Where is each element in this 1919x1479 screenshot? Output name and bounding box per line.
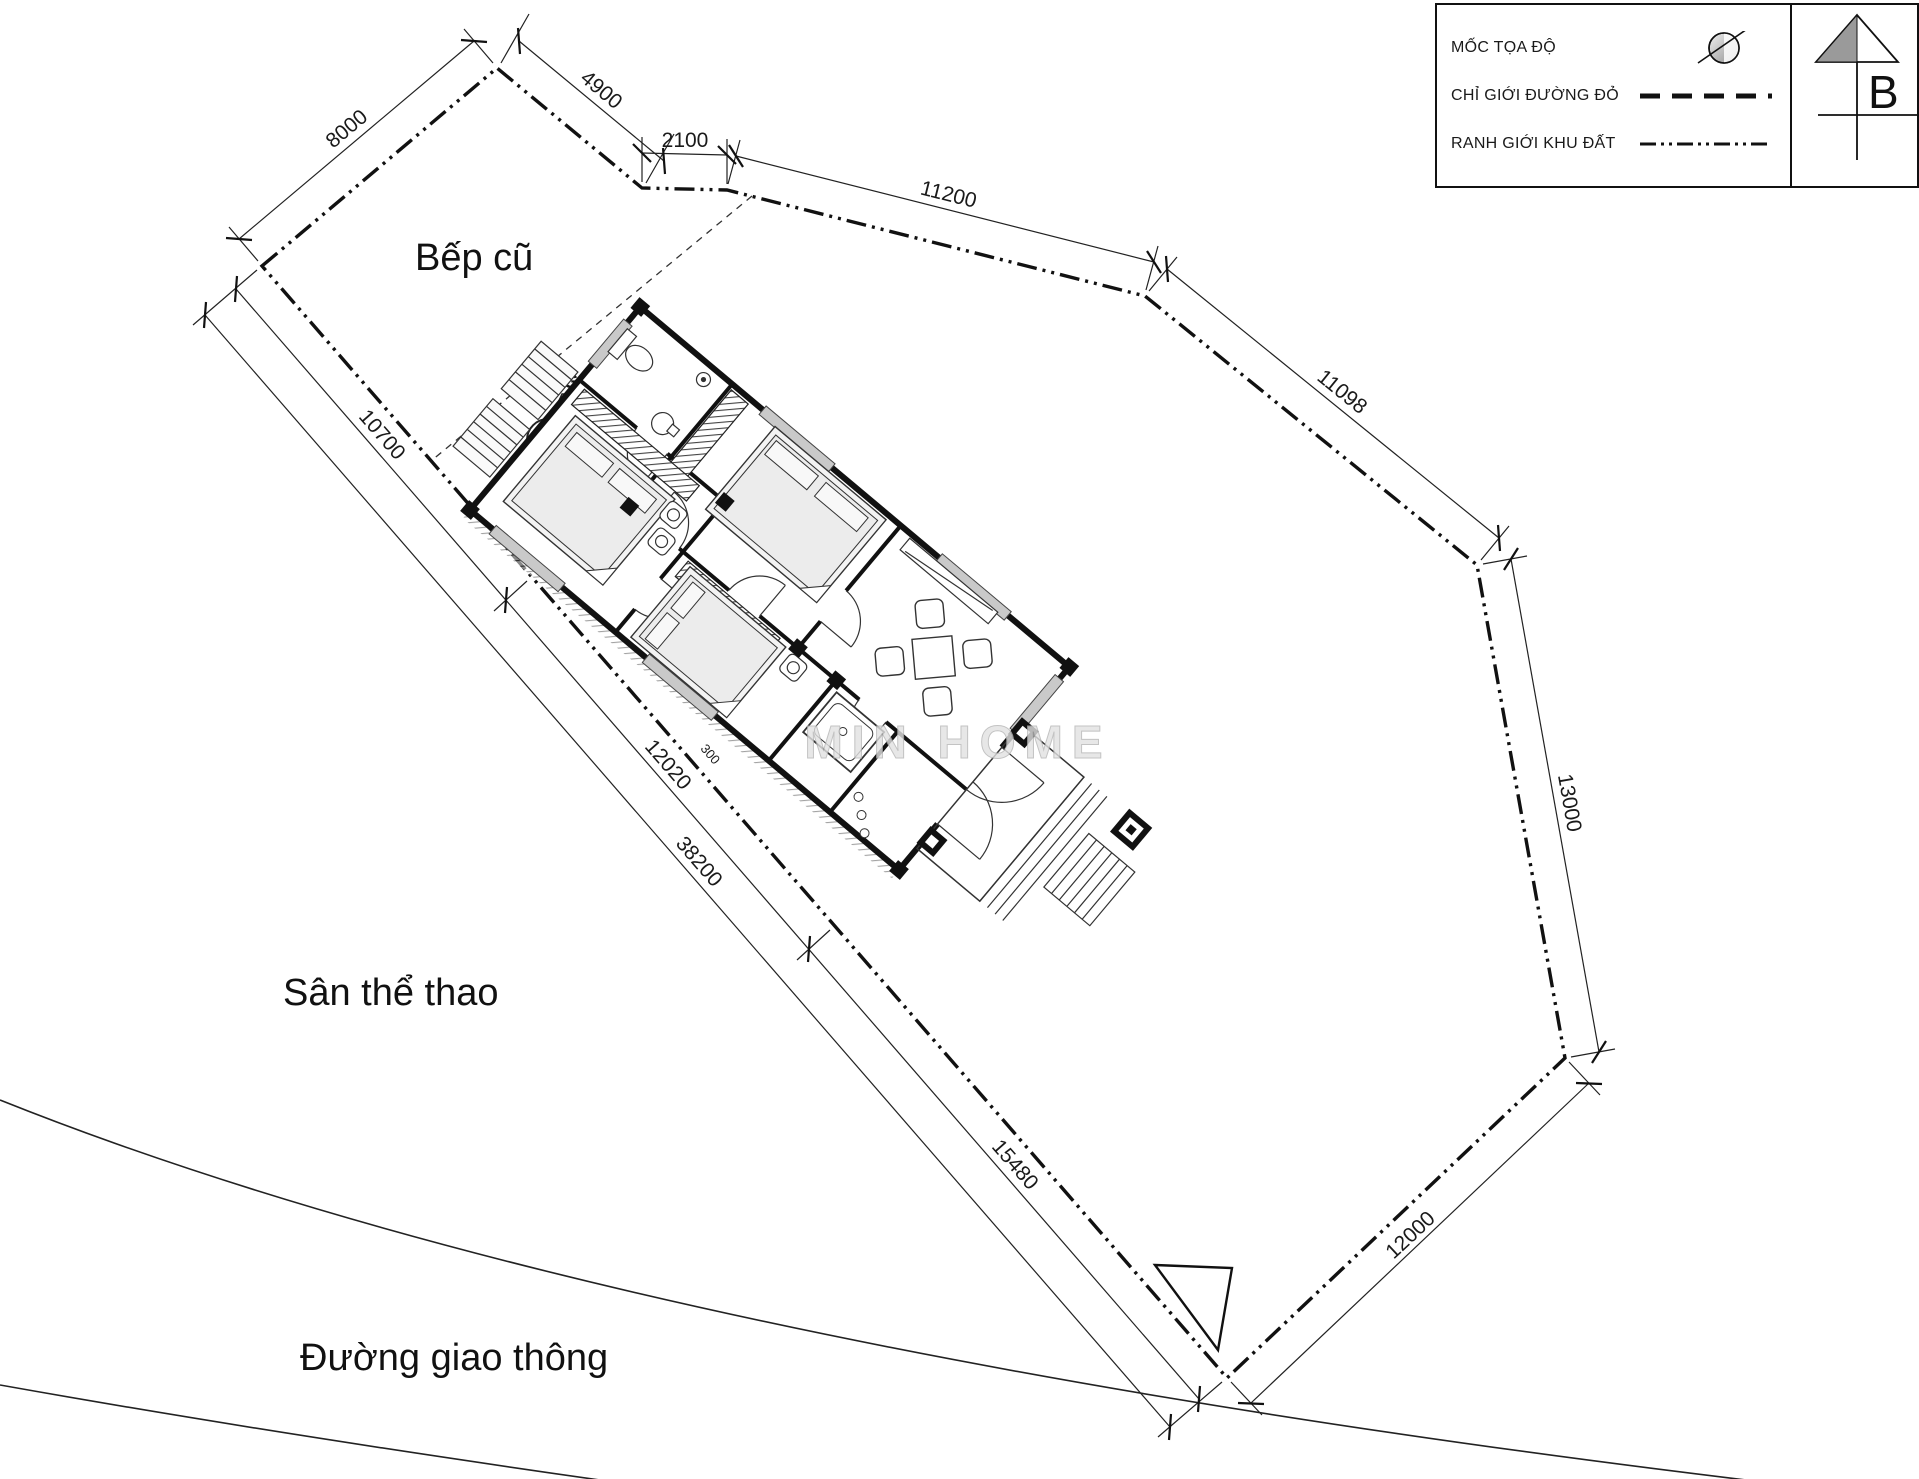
red-boundary-line-icon bbox=[1636, 79, 1776, 113]
north-arrow-icon: B bbox=[1792, 5, 1919, 186]
old-kitchen-label: Bếp cũ bbox=[415, 237, 533, 279]
legend-label-red-boundary: CHỈ GIỚI ĐƯỜNG ĐỎ bbox=[1451, 87, 1619, 105]
north-arrow-box: B bbox=[1790, 3, 1919, 188]
site-plan-drawing: 8000 4900 2100 11200 11098 13000 12000 1… bbox=[0, 0, 1919, 1479]
sports-yard-label: Sân thể thao bbox=[283, 972, 499, 1014]
legend-row-survey-marker: MỐC TỌA ĐỘ bbox=[1451, 31, 1776, 65]
dim-4900: 4900 bbox=[576, 66, 627, 114]
watermark: MIN HOME bbox=[804, 716, 1111, 768]
road-edges bbox=[0, 1100, 1919, 1479]
legend-label-survey-marker: MỐC TỌA ĐỘ bbox=[1451, 39, 1556, 57]
house-plan bbox=[422, 267, 1214, 995]
survey-triangle-marker bbox=[1155, 1265, 1232, 1350]
survey-marker-icon bbox=[1636, 31, 1776, 65]
dim-11200: 11200 bbox=[918, 177, 979, 213]
road-label: Đường giao thông bbox=[300, 1337, 608, 1379]
legend-label-site-boundary: RANH GIỚI KHU ĐẤT bbox=[1451, 135, 1616, 153]
dim-12000: 12000 bbox=[1381, 1207, 1439, 1264]
legend-box: MỐC TỌA ĐỘ CHỈ GIỚI ĐƯỜNG ĐỎ RANH GIỚI K… bbox=[1435, 3, 1792, 188]
dim-8000: 8000 bbox=[322, 105, 373, 153]
site-boundary-line-icon bbox=[1636, 127, 1776, 161]
north-letter: B bbox=[1868, 66, 1899, 118]
garden-walkway bbox=[1044, 833, 1135, 925]
site-plan-page: 8000 4900 2100 11200 11098 13000 12000 1… bbox=[0, 0, 1919, 1479]
dim-2100: 2100 bbox=[662, 129, 709, 152]
dim-300: 300 bbox=[698, 741, 724, 767]
legend-row-red-boundary: CHỈ GIỚI ĐƯỜNG ĐỎ bbox=[1451, 79, 1776, 113]
gate-pillar bbox=[1110, 809, 1152, 851]
legend-row-site-boundary: RANH GIỚI KHU ĐẤT bbox=[1451, 127, 1776, 161]
